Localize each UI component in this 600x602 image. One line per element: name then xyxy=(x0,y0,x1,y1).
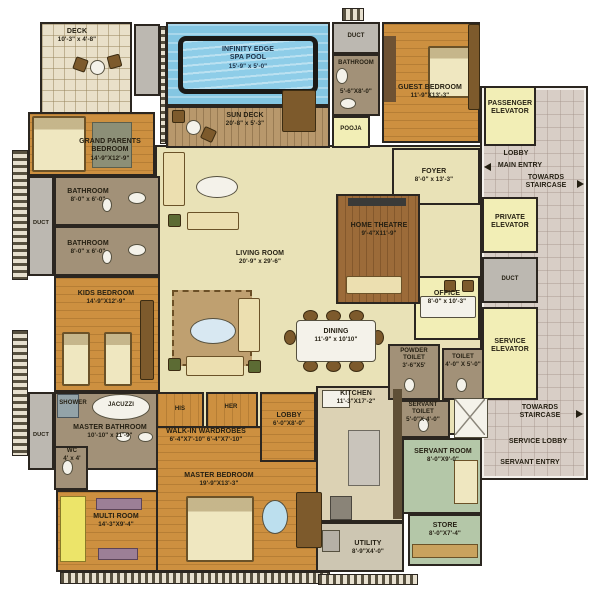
ledge-top xyxy=(342,8,364,21)
balcony-railing-bottom xyxy=(60,572,330,584)
room-label: OFFICE xyxy=(416,290,478,298)
toilet-fixture xyxy=(456,378,467,392)
label-sun-deck: SUN DECK 20'-8" x 5'-3" xyxy=(170,112,320,128)
label-office: OFFICE 8'-0" x 10'-3" xyxy=(416,290,478,306)
room-dims: 11'-9" x 10'10" xyxy=(300,336,372,343)
room-label: MAIN ENTRY xyxy=(492,162,548,170)
room-label: BATHROOM xyxy=(56,240,120,248)
kids-wardrobe xyxy=(140,300,154,380)
label-servant-room: SERVANT ROOM 8'-0"X9'-0" xyxy=(406,448,480,464)
room-dims: 3'-6"X5' xyxy=(389,362,439,369)
multi-room-daybed xyxy=(60,496,86,562)
theatre-screen xyxy=(348,198,406,206)
label-guest-bathroom: BATHROOM xyxy=(332,60,380,67)
label-bathroom-1: BATHROOM 8'-0" x 6'-0" xyxy=(56,188,120,204)
living-sofa-right xyxy=(238,298,260,352)
label-kids-bedroom: KIDS BEDROOM 14'-9"X12'-9" xyxy=(64,290,148,306)
room-label-2: SPA POOL xyxy=(180,54,316,62)
theatre-sofa xyxy=(346,276,402,294)
room-dims: 8'-9"X4'-0" xyxy=(336,548,400,555)
room-label: MULTI ROOM xyxy=(76,513,156,521)
room-label: PASSENGER ELEVATOR xyxy=(486,100,534,117)
room-label: SUN DECK xyxy=(170,112,320,120)
room-dims: 20'-8" x 5'-3" xyxy=(170,120,320,127)
room-dims: 14'-9"X12'-9" xyxy=(62,155,158,162)
label-passenger-elevator: PASSENGER ELEVATOR xyxy=(486,100,534,117)
room-label: DUCT xyxy=(29,220,53,227)
room-label: TOWARDS STAIRCASE xyxy=(506,404,574,421)
staircase-arrow-icon xyxy=(577,180,584,188)
label-deck: DECK 10'-3" x 4'-8" xyxy=(44,28,110,44)
room-duct-bottom xyxy=(28,392,54,470)
master-dresser xyxy=(296,492,322,548)
toilet-fixture xyxy=(336,68,348,84)
label-shower: SHOWER xyxy=(53,400,93,407)
room-dims: 8'-0" x 10'-3" xyxy=(416,298,478,305)
store-shelf xyxy=(412,544,478,558)
room-label: HIS xyxy=(163,406,197,413)
room-label: SERVANT ENTRY xyxy=(490,459,570,467)
label-lobby-inner: LOBBY 6'-0"X8'-0" xyxy=(264,412,314,428)
room-label: WC xyxy=(58,448,86,455)
room-label: FOYER xyxy=(398,168,470,176)
label-toilet: TOILET 4'-0" X 5'-0" xyxy=(441,354,485,368)
room-dims: 8'-0"X7'-4" xyxy=(414,530,476,537)
room-dims: 8'-0" x 6'-0" xyxy=(56,196,120,203)
label-kitchen: KITCHEN 11'-3"X17'-2" xyxy=(320,390,392,406)
room-dims: 11'-3"X17'-2" xyxy=(320,398,392,405)
label-main-entry: MAIN ENTRY xyxy=(492,162,548,170)
servant-bed xyxy=(454,460,478,504)
room-dims: 19'-9"X13'-3" xyxy=(162,480,276,487)
room-label: PRIVATE ELEVATOR xyxy=(486,214,534,231)
label-jacuzzi: JACUZZI xyxy=(96,402,146,409)
room-label: LOBBY xyxy=(264,412,314,420)
room-dims: 9'-4"X11'-9" xyxy=(342,230,416,237)
label-his: HIS xyxy=(163,406,197,413)
kids-bed xyxy=(62,332,90,386)
label-duct-top: DUCT xyxy=(332,33,380,40)
label-servant-toilet: SERVANT TOILET 5'-0"X 4'-0" xyxy=(398,402,448,423)
room-label: KITCHEN xyxy=(320,390,392,398)
deck-store-box xyxy=(134,24,160,96)
label-wc: WC 4' x 4' xyxy=(58,448,86,462)
ledge-left-lower xyxy=(12,330,28,456)
room-dims: 5'-0"X 4'-0" xyxy=(398,416,448,423)
plant-table xyxy=(248,360,261,373)
room-dims: 14'-3"X9'-4" xyxy=(76,521,156,528)
room-label: DUCT xyxy=(484,276,536,283)
multi-room-shelf xyxy=(96,498,142,510)
room-label: TOILET xyxy=(441,354,485,361)
label-guest-bedroom: GUEST BEDROOM 11'-9"X13'-3" xyxy=(392,84,468,100)
room-dims: 10'-10" x 11'-9" xyxy=(58,432,162,439)
kitchen-island xyxy=(348,430,380,486)
room-label: WALK-IN WARDROBES xyxy=(152,428,260,436)
plant-table xyxy=(168,214,181,227)
label-servant-entry: SERVANT ENTRY xyxy=(490,459,570,467)
room-label: UTILITY xyxy=(336,540,400,548)
room-label: JACUZZI xyxy=(96,402,146,409)
room-label: KIDS BEDROOM xyxy=(64,290,148,298)
label-living-room: LIVING ROOM 20'-9" x 29'-6" xyxy=(212,250,308,266)
balcony-railing-bottom-2 xyxy=(318,574,418,585)
deck-table xyxy=(90,60,105,75)
label-powder-toilet: POWDER TOILET 3'-6"X5' xyxy=(389,348,439,369)
label-utility: UTILITY 8'-9"X4'-0" xyxy=(336,540,400,556)
label-pooja: POOJA xyxy=(332,126,370,133)
room-label: STORE xyxy=(414,522,476,530)
room-dims: 6'-0"X8'-0" xyxy=(264,420,314,427)
room-label: SERVICE LOBBY xyxy=(498,438,578,446)
room-label: HOME THEATRE xyxy=(342,222,416,230)
label-duct-bottom: DUCT xyxy=(29,432,53,439)
room-label: MASTER BEDROOM xyxy=(162,472,276,480)
master-bed xyxy=(186,496,254,562)
label-service-elevator: SERVICE ELEVATOR xyxy=(486,338,534,355)
room-label: TOWARDS STAIRCASE xyxy=(516,174,576,191)
room-dims: 8'-0" x 6'-0" xyxy=(56,248,120,255)
master-rug xyxy=(262,500,288,534)
room-dims: 20'-9" x 29'-6" xyxy=(212,258,308,265)
room-dims: 4'-0" X 5'-0" xyxy=(441,361,485,368)
label-master-bathroom: MASTER BATHROOM 10'-10" x 11'-9" xyxy=(58,424,162,440)
kids-bed xyxy=(104,332,132,386)
label-service-lobby: SERVICE LOBBY xyxy=(498,438,578,446)
room-dims: 11'-9"X13'-3" xyxy=(392,92,468,99)
living-coffee-table xyxy=(190,318,236,344)
toilet-fixture xyxy=(404,378,415,392)
sink xyxy=(128,244,146,256)
label-towards-staircase-bottom: TOWARDS STAIRCASE xyxy=(506,404,574,421)
room-label: BATHROOM xyxy=(56,188,120,196)
multi-room-console xyxy=(98,548,138,560)
label-grand-parents: GRAND PARENTS BEDROOM 14'-9"X12'-9" xyxy=(62,138,158,162)
label-towards-staircase-top: TOWARDS STAIRCASE xyxy=(516,174,576,191)
room-dims: 8'-0" x 13'-3" xyxy=(398,176,470,183)
label-home-theatre: HOME THEATRE 9'-4"X11'-9" xyxy=(342,222,416,238)
room-label: MASTER BATHROOM xyxy=(58,424,162,432)
label-multi-room: MULTI ROOM 14'-3"X9'-4" xyxy=(76,513,156,529)
room-label: SERVANT ROOM xyxy=(406,448,480,456)
living-oval-table xyxy=(196,176,238,198)
room-dims: 10'-3" x 4'-8" xyxy=(44,36,110,43)
living-sofa xyxy=(163,152,185,206)
plant-table xyxy=(168,358,181,371)
dims-guest-bathroom: 5'-6"X8'-0" xyxy=(332,88,380,95)
room-dims: 14'-9"X12'-9" xyxy=(64,298,148,305)
living-sofa-bottom xyxy=(186,356,244,376)
room-label: POOJA xyxy=(332,126,370,133)
staircase-arrow-icon xyxy=(576,410,583,418)
room-label: DUCT xyxy=(29,432,53,439)
room-label: DECK xyxy=(44,28,110,36)
ledge-left-upper xyxy=(12,150,28,280)
room-label: DUCT xyxy=(332,33,380,40)
label-spa-pool: INFINITY EDGE SPA POOL 15'-9" x 5'-0" xyxy=(180,46,316,70)
room-label: DINING xyxy=(300,328,372,336)
room-label: SERVANT TOILET xyxy=(398,402,448,416)
cross-hatch-icon xyxy=(455,399,485,435)
room-label: INFINITY EDGE xyxy=(180,46,316,54)
label-lobby-main: LOBBY xyxy=(494,150,538,158)
room-dims: 15'-9" x 5'-0" xyxy=(180,63,316,70)
room-label: LIVING ROOM xyxy=(212,250,308,258)
room-dims: 4' x 4' xyxy=(58,455,86,462)
dining-chair xyxy=(284,330,296,345)
service-stair-shaft xyxy=(454,398,488,438)
label-duct-mid: DUCT xyxy=(484,276,536,283)
room-label: GUEST BEDROOM xyxy=(392,84,468,92)
sink xyxy=(340,98,356,109)
room-label: LOBBY xyxy=(494,150,538,158)
main-entry-arrow-icon xyxy=(484,163,491,171)
room-label: GRAND PARENTS BEDROOM xyxy=(62,138,158,155)
room-dims: 5'-6"X8'-0" xyxy=(332,88,380,95)
label-walk-in-wardrobes: WALK-IN WARDROBES 6'-4"X7'-10" 6'-4"X7'-… xyxy=(152,428,260,444)
label-dining: DINING 11'-9" x 10'10" xyxy=(300,328,372,344)
label-her: HER xyxy=(213,404,249,411)
label-bathroom-2: BATHROOM 8'-0" x 6'-0" xyxy=(56,240,120,256)
room-label: BATHROOM xyxy=(332,60,380,67)
label-foyer: FOYER 8'-0" x 13'-3" xyxy=(398,168,470,184)
room-dims: 8'-0"X9'-0" xyxy=(406,456,480,463)
sink xyxy=(128,192,146,204)
room-label: SERVICE ELEVATOR xyxy=(486,338,534,355)
room-label: HER xyxy=(213,404,249,411)
label-store: STORE 8'-0"X7'-4" xyxy=(414,522,476,538)
living-loveseat xyxy=(187,212,239,230)
floor-plan: DECK 10'-3" x 4'-8" INFINITY EDGE SPA PO… xyxy=(0,0,600,602)
room-dims: 6'-4"X7'-10" 6'-4"X7'-10" xyxy=(152,436,260,443)
kitchen-fridge xyxy=(330,496,352,520)
guest-wardrobe xyxy=(468,24,480,110)
room-label: POWDER TOILET xyxy=(389,348,439,362)
label-private-elevator: PRIVATE ELEVATOR xyxy=(486,214,534,231)
label-duct-left: DUCT xyxy=(29,220,53,227)
room-label: SHOWER xyxy=(53,400,93,407)
label-master-bedroom: MASTER BEDROOM 19'-9"X13'-3" xyxy=(162,472,276,488)
